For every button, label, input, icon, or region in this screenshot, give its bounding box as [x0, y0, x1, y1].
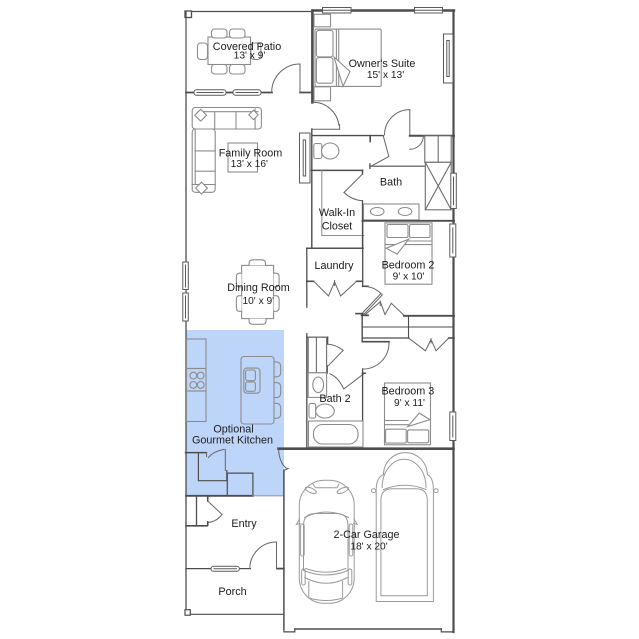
svg-text:Entry: Entry: [231, 518, 257, 530]
svg-text:Bedroom 3: Bedroom 3: [381, 385, 434, 397]
svg-text:10' x 9': 10' x 9': [242, 296, 274, 307]
svg-text:Dining Room: Dining Room: [227, 282, 289, 294]
svg-text:9' x 11': 9' x 11': [394, 398, 425, 409]
svg-text:15' x 13': 15' x 13': [367, 70, 404, 81]
svg-text:13' x 16': 13' x 16': [231, 159, 268, 170]
svg-text:Bath: Bath: [380, 177, 402, 189]
svg-text:9' x 10': 9' x 10': [393, 272, 425, 283]
svg-text:Bath 2: Bath 2: [319, 393, 350, 405]
svg-text:13' x 9': 13' x 9': [234, 51, 266, 62]
svg-text:Family Room: Family Room: [219, 148, 283, 160]
svg-text:Walk-In: Walk-In: [319, 207, 355, 219]
svg-text:Laundry: Laundry: [314, 260, 354, 272]
svg-text:2-Car Garage: 2-Car Garage: [333, 529, 399, 541]
svg-text:Owner's Suite: Owner's Suite: [349, 58, 416, 70]
svg-text:Closet: Closet: [322, 221, 353, 233]
svg-text:Bedroom 2: Bedroom 2: [382, 259, 435, 271]
svg-text:18' x 20': 18' x 20': [350, 541, 387, 552]
svg-text:Gourmet Kitchen: Gourmet Kitchen: [192, 435, 273, 447]
svg-text:Porch: Porch: [218, 586, 246, 598]
